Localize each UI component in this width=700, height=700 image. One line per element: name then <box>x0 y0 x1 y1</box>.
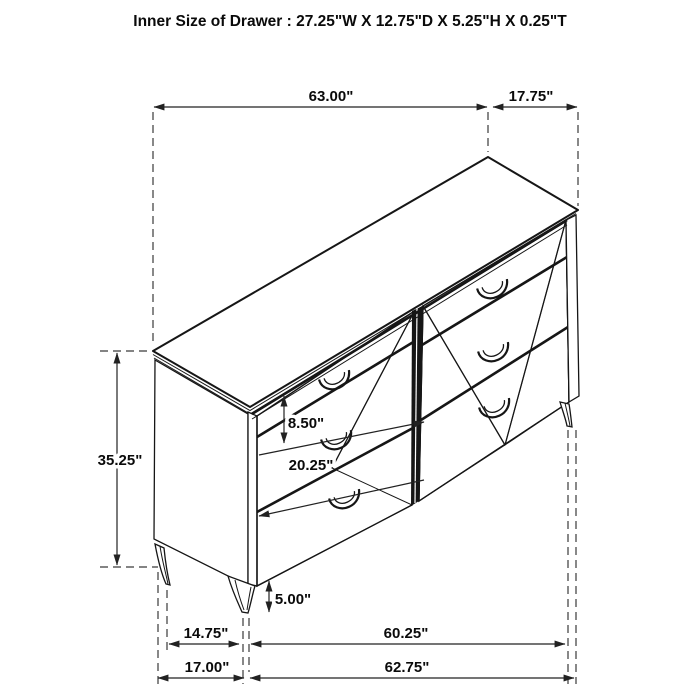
handle-right-bottom <box>479 394 514 422</box>
diagram-canvas: 63.00" 17.75" 35.25" 8.50" 20.25" 5.00" … <box>0 0 700 700</box>
leg-back-left <box>155 544 170 585</box>
front-right-corner-strip <box>566 215 579 402</box>
label-lower-front-diagonal: 20.25" <box>289 457 334 474</box>
label-base-width: 62.75" <box>385 659 430 676</box>
label-leg-height: 5.00" <box>275 591 311 608</box>
right-bank-vertical-fluting <box>419 306 505 501</box>
label-feet-span-width: 60.25" <box>384 625 429 642</box>
handle-left-middle <box>321 426 356 454</box>
label-top-depth: 17.75" <box>509 88 554 105</box>
dresser-top <box>153 157 578 414</box>
page-title: Inner Size of Drawer : 27.25"W X 12.75"D… <box>133 13 567 30</box>
label-top-width: 63.00" <box>309 88 354 105</box>
front-left-corner-strip <box>248 412 257 586</box>
handle-right-middle <box>478 338 513 366</box>
label-base-depth: 17.00" <box>185 659 230 676</box>
label-feet-inset-depth: 14.75" <box>184 625 229 642</box>
handle-right-top <box>477 275 512 303</box>
label-top-drawer-front: 8.50" <box>288 415 324 432</box>
dresser-dimension-diagram: 63.00" 17.75" 35.25" 8.50" 20.25" 5.00" … <box>0 0 700 700</box>
label-body-height: 35.25" <box>98 452 143 469</box>
